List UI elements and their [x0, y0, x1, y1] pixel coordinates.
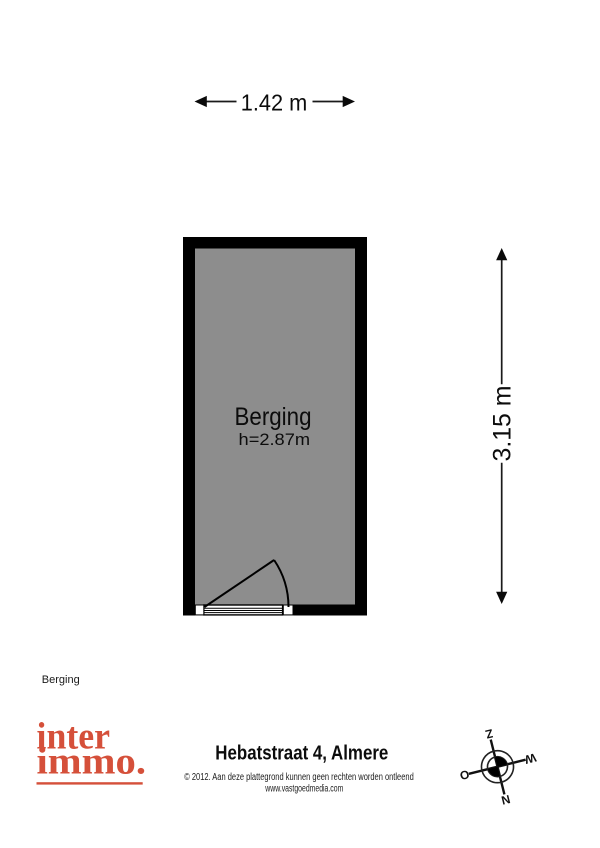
svg-text:N: N: [500, 792, 512, 808]
svg-text:Berging: Berging: [235, 403, 312, 431]
svg-text:W: W: [523, 750, 538, 766]
svg-text:www.vastgoedmedia.com: www.vastgoedmedia.com: [265, 783, 344, 794]
svg-text:O: O: [458, 767, 470, 783]
svg-text:Berging: Berging: [42, 674, 80, 686]
svg-text:© 2012. Aan deze plattegrond k: © 2012. Aan deze plattegrond kunnen geen…: [184, 772, 414, 783]
svg-text:immo.: immo.: [37, 740, 147, 782]
svg-text:Hebatstraat 4, Almere: Hebatstraat 4, Almere: [215, 743, 388, 765]
svg-text:3.15 m: 3.15 m: [489, 386, 517, 462]
svg-text:1.42 m: 1.42 m: [241, 90, 308, 116]
svg-text:h=2.87m: h=2.87m: [239, 431, 311, 449]
svg-text:Z: Z: [484, 726, 495, 741]
